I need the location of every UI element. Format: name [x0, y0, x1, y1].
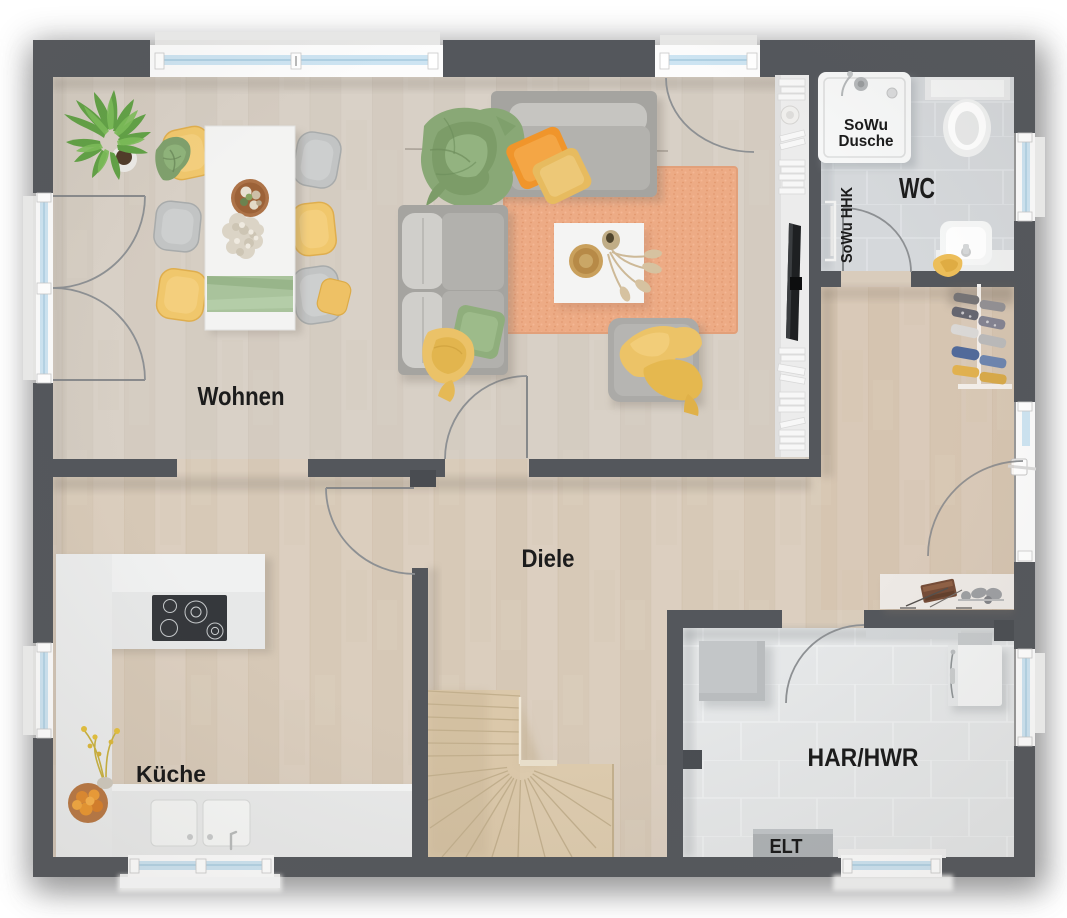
- svg-text:Wohnen: Wohnen: [198, 381, 285, 411]
- svg-text:SoWu: SoWu: [844, 117, 888, 134]
- svg-text:ELT: ELT: [770, 836, 803, 858]
- svg-text:SoWu HHK: SoWu HHK: [839, 187, 856, 263]
- svg-text:Diele: Diele: [522, 545, 575, 573]
- svg-text:Dusche: Dusche: [839, 133, 894, 150]
- svg-text:HAR/HWR: HAR/HWR: [808, 744, 919, 772]
- svg-text:Küche: Küche: [136, 761, 206, 787]
- svg-text:WC: WC: [899, 173, 935, 205]
